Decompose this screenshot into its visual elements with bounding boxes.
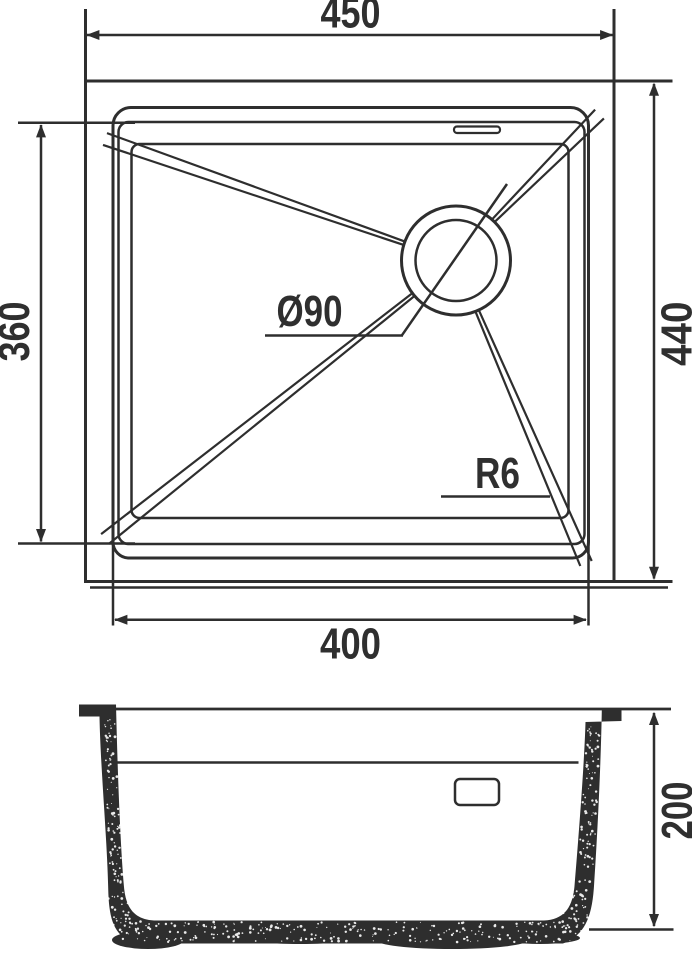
svg-text:Ø90: Ø90 bbox=[277, 287, 343, 336]
svg-text:200: 200 bbox=[653, 782, 692, 840]
svg-text:400: 400 bbox=[320, 620, 381, 669]
svg-text:440: 440 bbox=[653, 302, 692, 367]
svg-text:450: 450 bbox=[321, 0, 381, 38]
svg-text:360: 360 bbox=[0, 302, 39, 362]
svg-text:R6: R6 bbox=[475, 449, 520, 498]
